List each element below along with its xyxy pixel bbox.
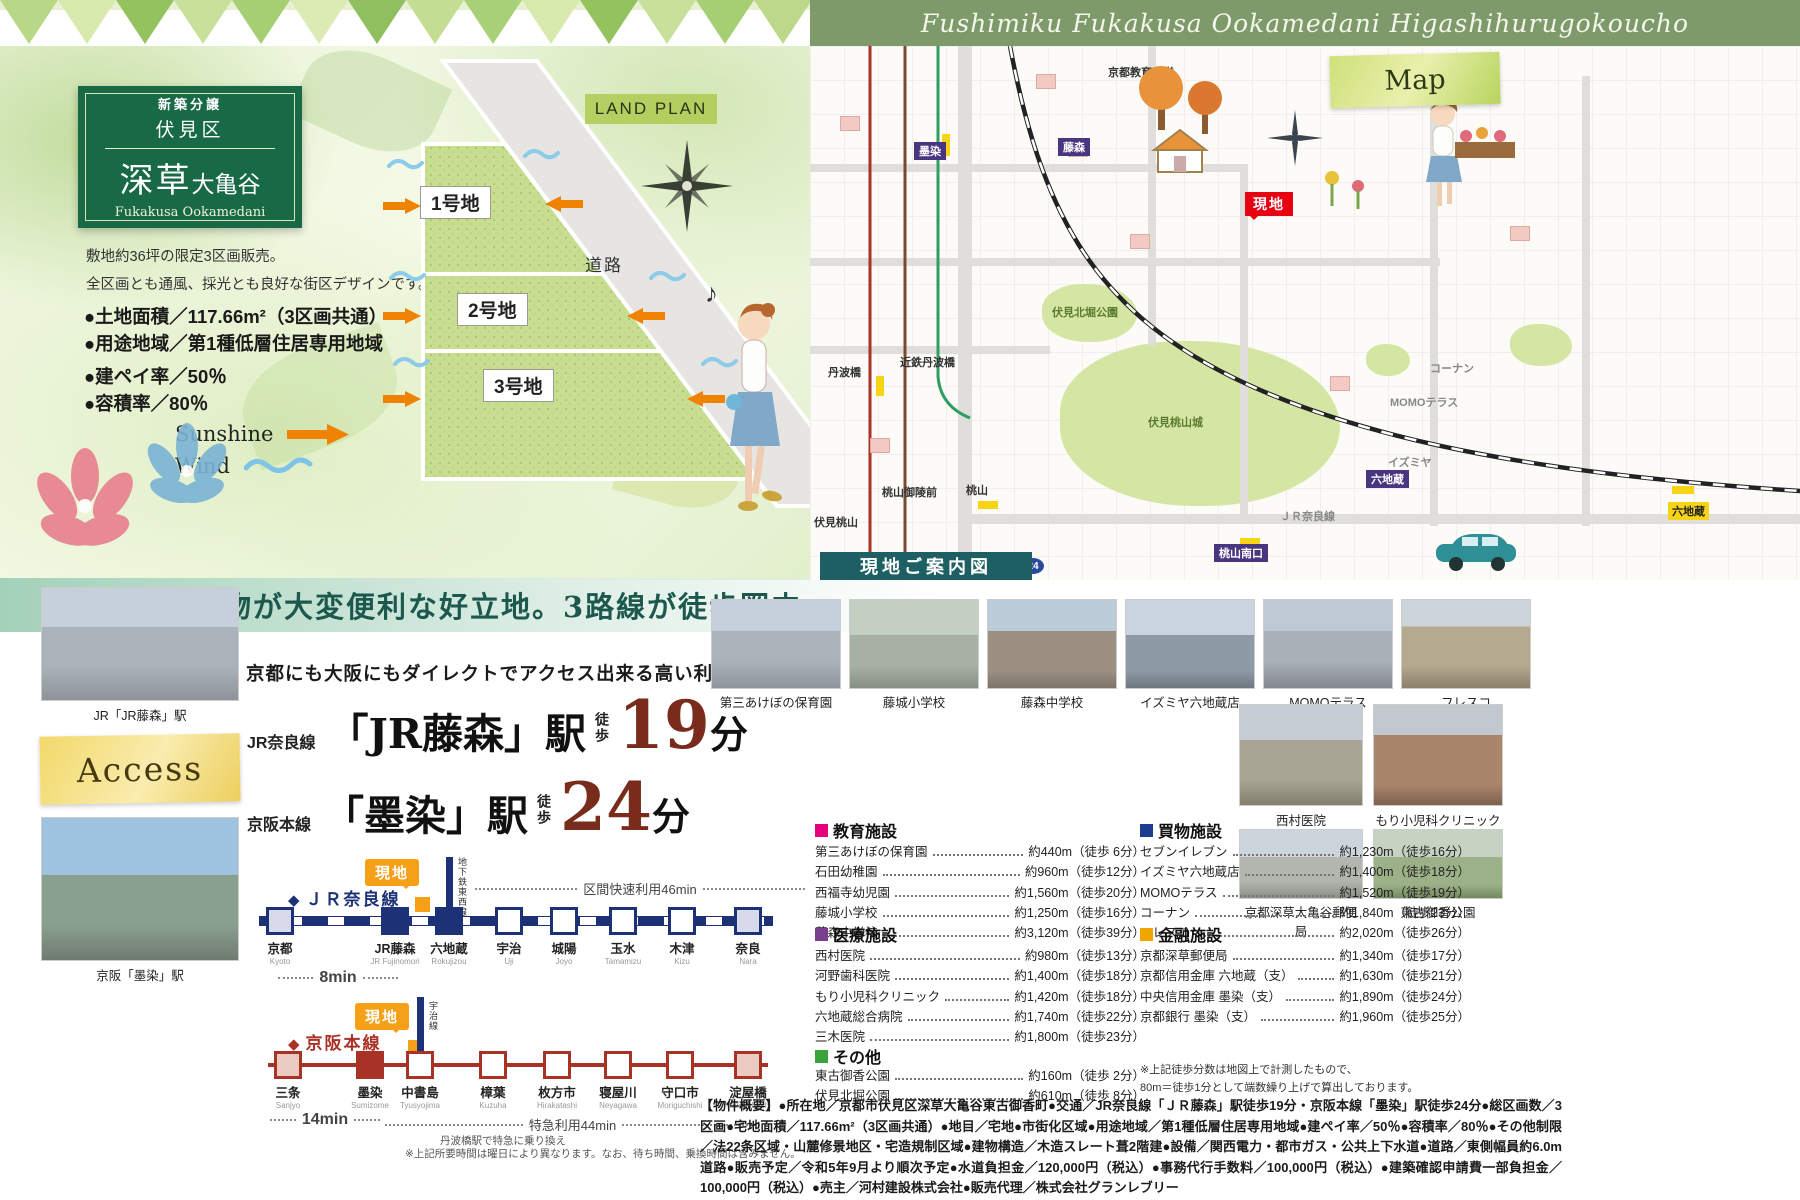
jr-minutes-unit: 分 — [710, 704, 748, 759]
photo-shogakko — [850, 600, 978, 688]
badge-name-main: 深草 — [120, 161, 192, 201]
landmark-box — [1510, 226, 1530, 241]
caption-nishimura-clinic: 西村医院 — [1240, 810, 1362, 829]
jr-walk-label: 徒歩 — [592, 712, 612, 744]
station-tamamizu: 玉水Tamamizu — [591, 907, 655, 966]
badge-name-sub: 大亀谷 — [192, 172, 261, 198]
caption-shogakko: 藤城小学校 — [850, 692, 978, 711]
keihan-minutes: 24 — [560, 778, 652, 837]
map-label-momo-terrace: MOMOテラス — [1390, 394, 1458, 410]
station-chushojima: 中書島Tyusyojima — [388, 1051, 452, 1110]
keihan-minutes-unit: 分 — [652, 786, 690, 841]
shopping-square-icon — [1140, 824, 1153, 837]
photo-momo-terrace — [1264, 600, 1392, 688]
education-title: 教育施設 — [815, 818, 897, 842]
finance-title: 金融施設 — [1140, 922, 1222, 946]
map-station-fujinomori: 藤森 — [1058, 138, 1090, 156]
spec-zoning: ●用途地域／第1種低層住居専用地域 — [84, 331, 387, 358]
map-station-sumizome: 墨染 — [914, 142, 946, 160]
station-joyo: 城陽Joyo — [532, 907, 596, 966]
jr-route-diagram: ◆ＪＲ奈良線 現地 地下鉄東西線 区間快速利用46min 京都Kyoto JR藤… — [250, 857, 810, 987]
medical-square-icon — [815, 928, 828, 941]
map-station-momoyama: 桃山 — [966, 482, 988, 498]
lot1-label: 1号地 — [420, 186, 491, 219]
jr-line-name: JR奈良線 — [247, 729, 315, 753]
flower-icon — [1318, 164, 1378, 220]
site-location-flag: 現地 — [1245, 192, 1293, 216]
landmark-box — [1330, 376, 1350, 391]
station-nara: 奈良Nara — [716, 907, 780, 966]
access-label-tag: Access — [39, 733, 240, 804]
spec-list-1: ●土地面積／117.66m²（3区画共通） ●用途地域／第1種低層住居専用地域 — [84, 304, 387, 358]
map-label-kitabori-park: 伏見北堀公園 — [1052, 304, 1118, 320]
station-bar — [978, 501, 998, 509]
landmark-box — [870, 438, 890, 453]
photo-izumiya — [1126, 600, 1254, 688]
land-plan-title: LAND PLAN — [585, 94, 717, 124]
map-label-konan: コーナン — [1430, 360, 1474, 376]
property-badge: 新築分譲 伏見区 深草大亀谷 Fukakusa Ookamedani — [78, 86, 302, 228]
spec-land-area: ●土地面積／117.66m²（3区画共通） — [84, 304, 387, 331]
flyer-page: Fushimiku Fukakusa Ookamedani Higashihur… — [0, 0, 1800, 1200]
keihan-local-dotline: 14min — [270, 1111, 380, 1129]
keihan-station-name: 「墨染」駅 — [323, 782, 528, 842]
jr-express-dotline: 区間快速利用46min — [475, 879, 805, 898]
walking-woman-illustration — [712, 294, 802, 524]
sparkle-compass-icon — [1265, 108, 1325, 168]
photo-caption-jr-station: JR「JR藤森」駅 — [42, 705, 238, 724]
caption-hoikuen: 第三あけぼの保育園 — [712, 692, 840, 711]
map-station-rokujizo: 六地蔵 — [1366, 470, 1409, 488]
wind-wave-icon — [244, 456, 314, 476]
badge-romaji: Fukakusa Ookamedani — [115, 205, 266, 220]
station-hirakatashi: 枚方市Hirakatashi — [525, 1051, 589, 1110]
landmark-box — [1036, 74, 1056, 89]
photo-hoikuen — [712, 600, 840, 688]
station-rokujizo: 六地蔵Rokujizou — [417, 907, 481, 966]
map-station-fushimimomoyama: 伏見桃山 — [814, 514, 858, 530]
sun-arrow-icon — [383, 198, 421, 407]
medical-list: 西村医院約980m（徒歩13分） 河野歯科医院約1,400m（徒歩18分） もり… — [815, 946, 1145, 1047]
jr-station-name: 「JR藤森」駅 — [327, 700, 585, 760]
station-sanjo: 三条Sanjyo — [256, 1051, 320, 1110]
station-bar — [876, 376, 884, 396]
caption-chugakko: 藤森中学校 — [988, 692, 1116, 711]
badge-sale-type: 新築分譲 — [158, 94, 222, 113]
map-label-izumiya: イズミヤ — [1388, 454, 1432, 470]
badge-district: 伏見区 — [155, 115, 224, 142]
road-label: 道路 — [585, 251, 623, 276]
car-icon — [1432, 528, 1524, 574]
photo-mori-clinic — [1374, 705, 1502, 805]
keihan-line-name: 京阪本線 — [247, 811, 311, 835]
shopping-title: 買物施設 — [1140, 818, 1222, 842]
photo-nishimura-clinic — [1240, 705, 1362, 805]
keihan-site-bubble: 現地 — [355, 1003, 409, 1030]
uji-line-label: 宇治線 — [427, 1001, 440, 1031]
photo-jr-fujinomori-station — [42, 588, 238, 700]
planter-icon — [1450, 124, 1520, 164]
medical-title: 医療施設 — [815, 922, 897, 946]
left-panel: 新築分譲 伏見区 深草大亀谷 Fukakusa Ookamedani 敷地約36… — [0, 46, 810, 580]
photo-fresco — [1402, 600, 1530, 688]
finance-square-icon — [1140, 928, 1153, 941]
uji-line-bar — [417, 997, 424, 1059]
map-label-jr-nara-line: ＪＲ奈良線 — [1280, 508, 1335, 524]
photo-chugakko — [988, 600, 1116, 688]
map-label-momoyama-castle: 伏見桃山城 — [1148, 414, 1203, 430]
caption-izumiya: イズミヤ六地蔵店 — [1126, 692, 1254, 711]
other-title: その他 — [815, 1044, 881, 1068]
station-kizu: 木津Kizu — [650, 907, 714, 966]
photo-caption-keihan-station: 京阪「墨染」駅 — [42, 965, 238, 984]
finance-list: 京都深草郵便局約1,340m（徒歩17分） 京都信用金庫 六地蔵（支）約1,63… — [1140, 946, 1470, 1027]
map-station-rokujizo-jr: 六地蔵 — [1668, 502, 1709, 520]
lot3-label: 3号地 — [483, 369, 554, 402]
spec-floor-ratio: ●容積率／80％ — [84, 391, 227, 418]
map-station-kintetsu-tanbabashi: 近鉄丹波橋 — [900, 354, 955, 370]
caption-mori-clinic: もり小児科クリニック — [1374, 810, 1502, 829]
keihan-time-row: 京阪本線 「墨染」駅 徒歩 24 分 — [247, 778, 690, 842]
station-kyoto: 京都Kyoto — [248, 907, 312, 966]
education-square-icon — [815, 824, 828, 837]
property-overview: 【物件概要】●所在地／京都市伏見区深草大亀谷東古御香町●交通／JR奈良線「ＪＲ藤… — [700, 1096, 1562, 1199]
map-station-momoyamagoryomae: 桃山御陵前 — [882, 484, 937, 500]
bunting-pattern — [0, 0, 810, 46]
map-label-tag: Map — [1329, 52, 1500, 108]
station-bar — [1672, 486, 1694, 494]
jr-minutes: 19 — [618, 696, 710, 755]
pink-flower-icon — [30, 446, 140, 566]
sun-arrow-icon — [287, 422, 351, 446]
lot2-label: 2号地 — [457, 293, 528, 326]
spec-list-2: ●建ペイ率／50％ ●容積率／80％ — [84, 364, 227, 418]
station-kuzuha: 樟葉Kuzuha — [461, 1051, 525, 1110]
header-banner-text: Fushimiku Fukakusa Ookamedani Higashihur… — [921, 9, 1689, 38]
access-headline: 京都にも大阪にもダイレクトでアクセス出来る高い利便性。 — [246, 660, 772, 686]
landmark-box — [840, 116, 860, 131]
map-caption-band: 現地ご案内図 — [820, 552, 1032, 580]
photo-keihan-sumizome-station — [42, 818, 238, 960]
area-map: 墨染 藤森 丹波橋 近鉄丹波橋 桃山御陵前 伏見桃山 桃山 桃山南口 六地蔵 六… — [810, 46, 1800, 580]
station-neyagawa: 寝屋川Neyagawa — [586, 1051, 650, 1110]
blue-flower-icon — [140, 421, 235, 521]
map-station-momoyamaminamiguchi: 桃山南口 — [1214, 544, 1268, 562]
landmark-box — [1130, 234, 1150, 249]
map-station-tanbabashi: 丹波橋 — [828, 364, 861, 380]
header-banner: Fushimiku Fukakusa Ookamedani Higashihur… — [810, 0, 1800, 46]
jr-site-bubble: 現地 — [365, 859, 419, 886]
spec-coverage: ●建ペイ率／50％ — [84, 364, 227, 391]
other-square-icon — [815, 1050, 828, 1063]
house-icon — [1148, 124, 1212, 176]
keihan-walk-label: 徒歩 — [534, 794, 554, 826]
jr-time-row: JR奈良線 「JR藤森」駅 徒歩 19 分 — [247, 696, 748, 760]
badge-divider — [105, 148, 275, 149]
walk-distance-note: ※上記徒歩分数は地図上で計測したもので、 80m＝徒歩1分として端数繰り上げで算… — [1140, 1062, 1418, 1097]
